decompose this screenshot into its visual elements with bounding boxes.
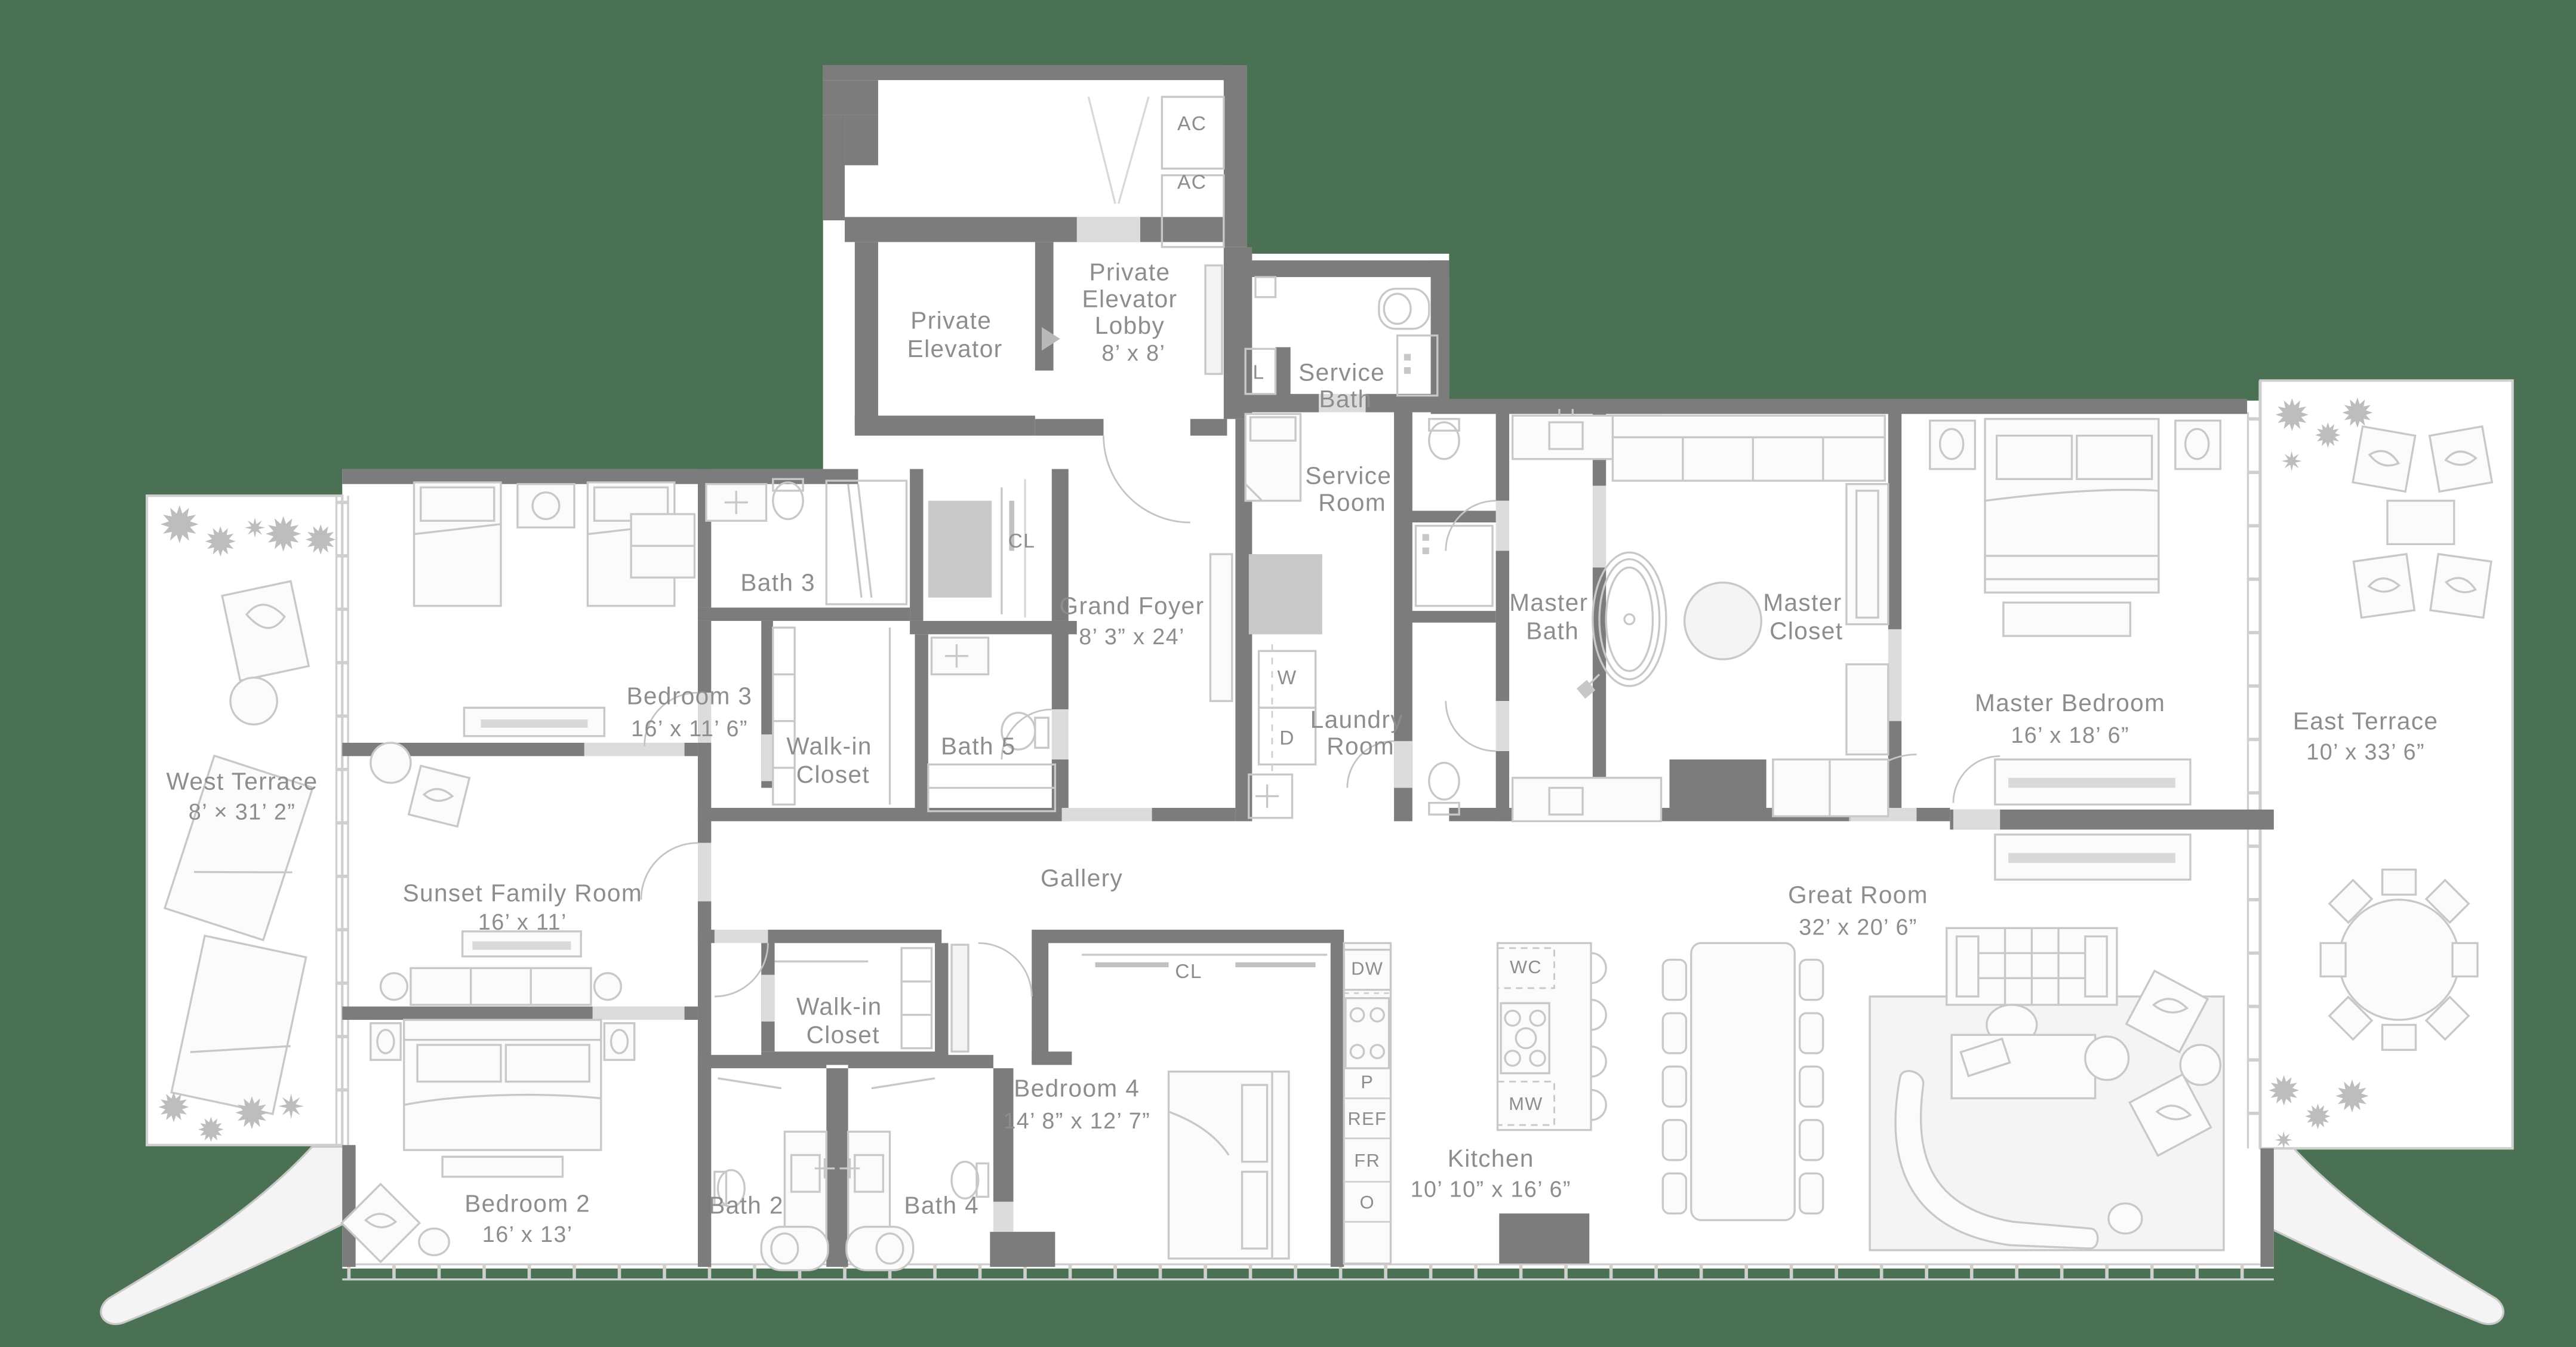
svg-text:✹: ✹ xyxy=(304,517,338,564)
pouf xyxy=(419,1229,449,1256)
svg-text:✹: ✹ xyxy=(2314,417,2343,456)
dims-bedroom-4: 14’ 8” x 12’ 7” xyxy=(1003,1108,1150,1133)
tufted-sofa xyxy=(1947,928,2117,1005)
svg-text:✹: ✹ xyxy=(204,519,238,565)
label-kitchen: Kitchen xyxy=(1448,1145,1534,1172)
svg-text:✹: ✹ xyxy=(159,496,202,555)
label-bath-5: Bath 5 xyxy=(941,733,1016,760)
side-table xyxy=(2085,1037,2129,1080)
dims-master-bedroom: 16’ x 18’ 6” xyxy=(2011,722,2129,748)
label-microwave: MW xyxy=(1509,1093,1543,1114)
label-east-terrace: East Terrace xyxy=(2293,708,2439,735)
armchair xyxy=(409,766,470,827)
closet-ottoman xyxy=(1685,583,1762,660)
dims-sunset-family-room: 16’ x 11’ xyxy=(478,909,567,934)
terrace-table xyxy=(2387,501,2454,545)
dims-east-terrace: 10’ x 33’ 6” xyxy=(2306,739,2425,764)
svg-text:✹: ✹ xyxy=(2334,1072,2371,1122)
label-ac-1: AC xyxy=(1177,113,1207,135)
label-bath-2: Bath 2 xyxy=(709,1191,784,1219)
label-grand-foyer: Grand Foyer xyxy=(1060,592,1205,620)
floor-plan-stage: ✹ ✹ ✷ ✹ ✹ ✹ ✹ ✹ ✷ ✹ ✹ ✹ ✷ xyxy=(0,0,2576,1347)
dims-bedroom-2: 16’ x 13’ xyxy=(482,1222,573,1247)
round-table xyxy=(230,678,277,724)
label-private-elevator: Private Elevator xyxy=(907,307,1003,363)
label-bath-4: Bath 4 xyxy=(904,1191,979,1219)
foyer-console xyxy=(1210,554,1232,701)
terrace-chair xyxy=(2353,426,2415,491)
svg-text:✹: ✹ xyxy=(2304,1098,2332,1137)
label-bedroom-4: Bedroom 4 xyxy=(1014,1075,1140,1102)
label-ac-2: AC xyxy=(1177,171,1207,193)
svg-text:✹: ✹ xyxy=(2274,391,2311,441)
svg-text:✹: ✹ xyxy=(264,508,304,562)
pouf xyxy=(2109,1204,2142,1234)
terrace-chair xyxy=(2430,426,2492,491)
label-dryer: D xyxy=(1279,727,1295,749)
floor-plan: ✹ ✹ ✷ ✹ ✹ ✹ ✹ ✹ ✷ ✹ ✹ ✹ ✷ xyxy=(0,0,2576,1347)
service-room-cot xyxy=(1245,414,1300,500)
label-master-bedroom: Master Bedroom xyxy=(1975,689,2165,716)
label-bedroom-2: Bedroom 2 xyxy=(464,1190,590,1217)
label-walk-in-closet-upper: Walk-in Closet xyxy=(786,733,879,789)
label-service-room: Service Room xyxy=(1305,462,1399,516)
terrace-chair xyxy=(2430,554,2491,618)
side-table xyxy=(2180,1045,2220,1085)
label-dishwasher: DW xyxy=(1351,958,1383,979)
label-sunset-family-room: Sunset Family Room xyxy=(403,879,642,907)
label-washer: W xyxy=(1278,667,1297,689)
svg-text:✹: ✹ xyxy=(2267,1068,2302,1115)
label-freezer: FR xyxy=(1354,1150,1380,1171)
label-refrigerator: REF xyxy=(1347,1108,1387,1129)
dims-great-room: 32’ x 20’ 6” xyxy=(1799,915,1918,940)
dims-kitchen: 10’ 10” x 16’ 6” xyxy=(1411,1176,1571,1201)
label-bath-3: Bath 3 xyxy=(740,569,815,596)
shaft xyxy=(1249,554,1322,634)
lobby-cabinet xyxy=(1205,265,1222,374)
label-wine-cooler: WC xyxy=(1510,957,1542,977)
svg-text:✹: ✹ xyxy=(197,1111,226,1150)
label-cl-lower: CL xyxy=(1175,961,1202,983)
round-table xyxy=(371,743,411,783)
label-bedroom-3: Bedroom 3 xyxy=(627,682,753,710)
pocket-door xyxy=(952,945,968,1051)
label-linen: L xyxy=(1253,362,1265,384)
label-west-terrace: West Terrace xyxy=(166,767,318,795)
bed-bench xyxy=(2003,602,2131,636)
label-pantry: P xyxy=(1361,1072,1374,1093)
dining-set xyxy=(1663,943,1823,1220)
label-oven: O xyxy=(1360,1192,1375,1213)
kitchen-column xyxy=(1499,1213,1589,1263)
bed-bench xyxy=(442,1157,562,1177)
stair-step xyxy=(823,80,878,115)
label-walk-in-closet-lower: Walk-in Closet xyxy=(796,993,890,1049)
svg-text:✹: ✹ xyxy=(234,1089,271,1139)
svg-text:✷: ✷ xyxy=(2274,1127,2294,1154)
dims-grand-foyer: 8’ 3” x 24’ xyxy=(1079,624,1185,649)
label-gallery: Gallery xyxy=(1041,864,1123,891)
terrace-chair xyxy=(2353,554,2414,618)
svg-text:✷: ✷ xyxy=(277,1088,306,1127)
label-master-closet: Master Closet xyxy=(1763,589,1849,645)
label-cl-upper: CL xyxy=(1008,530,1036,552)
shaft xyxy=(928,501,992,598)
svg-text:✷: ✷ xyxy=(2280,445,2304,477)
dims-bedroom-3: 16’ x 11’ 6” xyxy=(631,716,748,741)
svg-text:✹: ✹ xyxy=(157,1085,192,1131)
dims-west-terrace: 8’ × 31’ 2” xyxy=(189,799,296,825)
label-great-room: Great Room xyxy=(1788,881,1928,908)
closet-bench xyxy=(1670,759,1766,816)
stair-step xyxy=(845,115,878,165)
